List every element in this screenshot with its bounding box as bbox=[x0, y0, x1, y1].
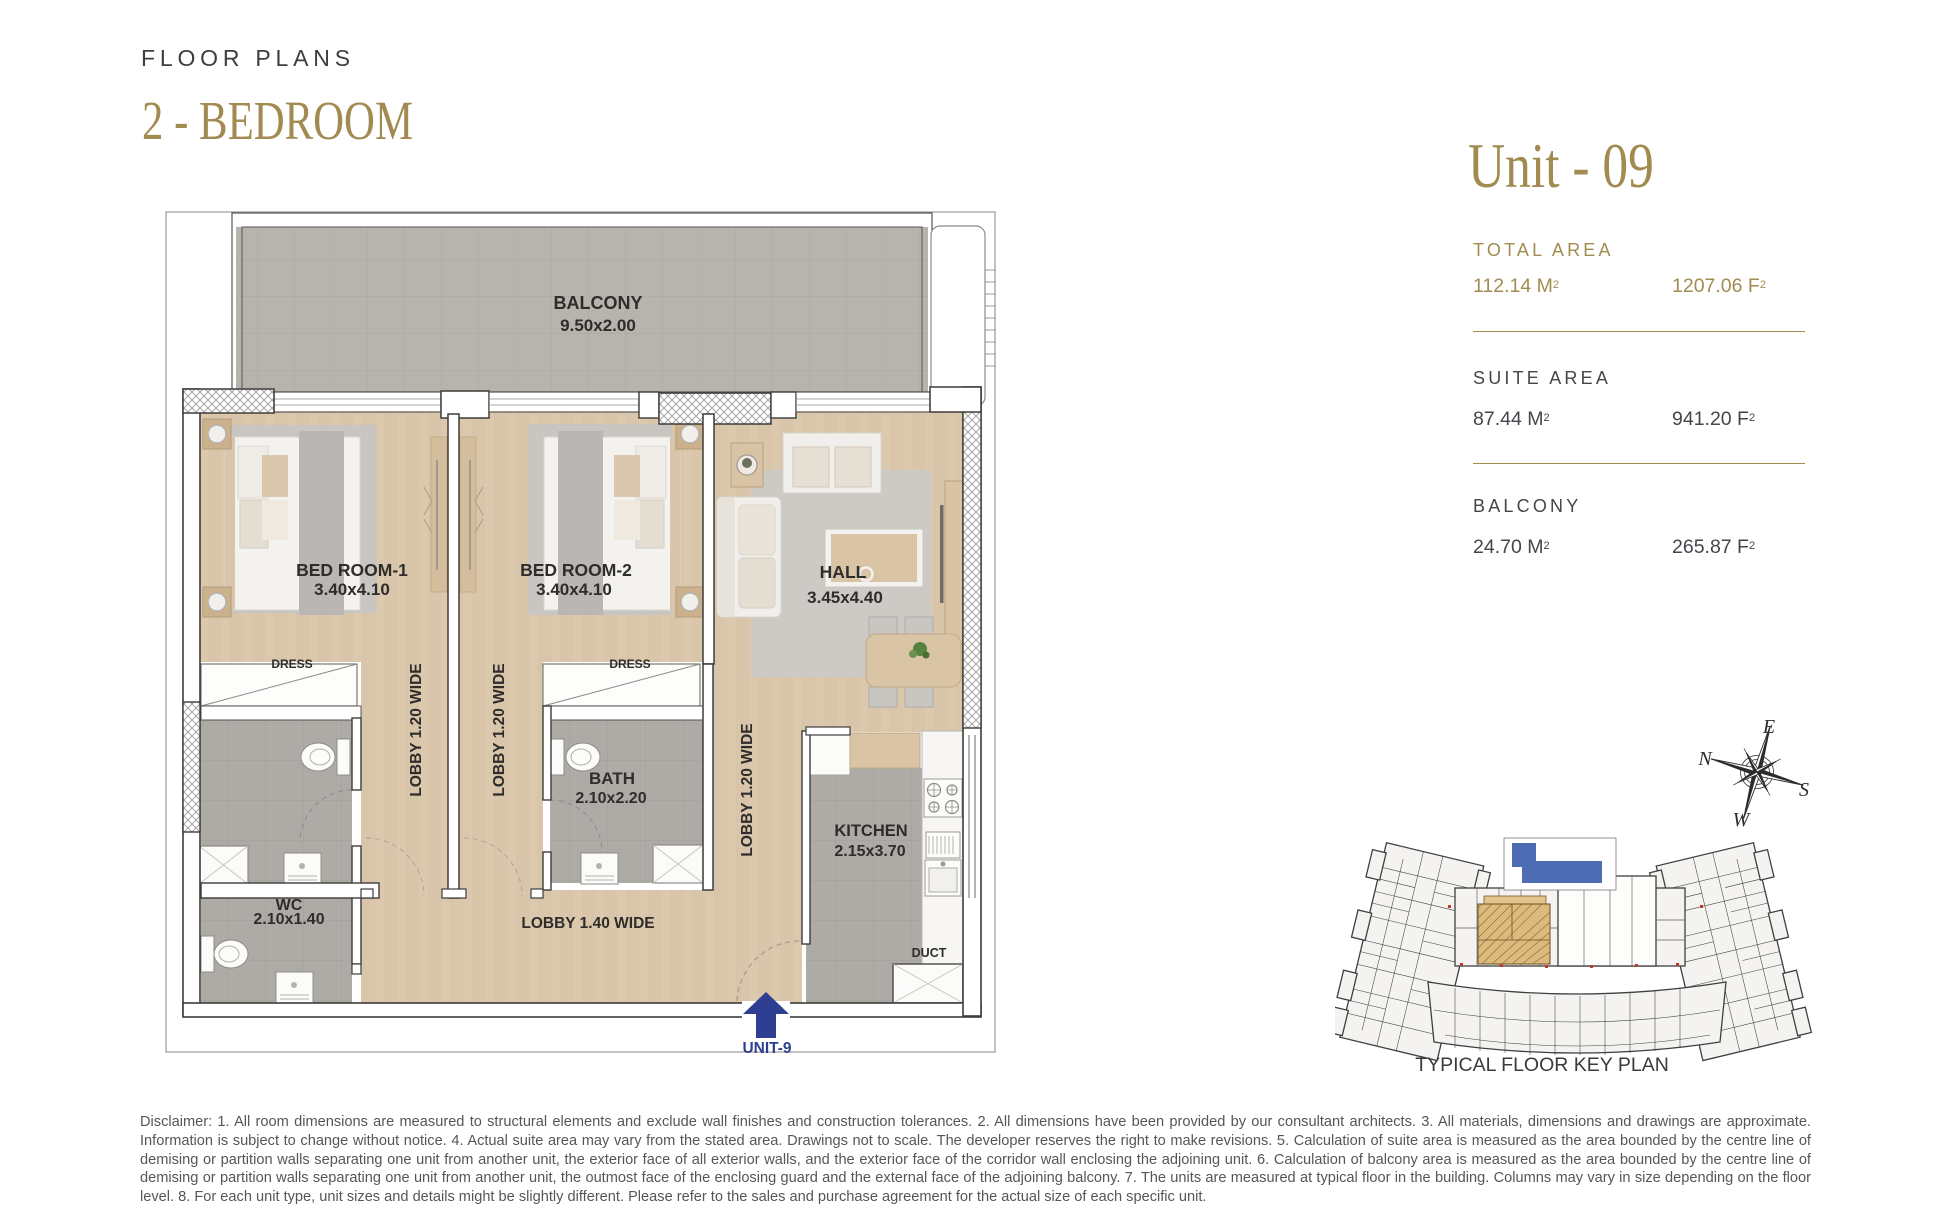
svg-text:N: N bbox=[1697, 748, 1713, 770]
svg-text:BED ROOM-1: BED ROOM-1 bbox=[296, 560, 408, 580]
svg-text:2.10x2.20: 2.10x2.20 bbox=[575, 790, 646, 807]
svg-text:HALL: HALL bbox=[820, 562, 867, 582]
svg-text:UNIT-9: UNIT-9 bbox=[742, 1040, 791, 1057]
svg-text:TYPICAL FLOOR KEY PLAN: TYPICAL FLOOR KEY PLAN bbox=[1415, 1054, 1669, 1076]
svg-text:KITCHEN: KITCHEN bbox=[834, 822, 907, 840]
svg-text:E: E bbox=[1762, 716, 1775, 738]
svg-text:LOBBY 1.40 WIDE: LOBBY 1.40 WIDE bbox=[521, 915, 654, 932]
svg-text:DRESS: DRESS bbox=[271, 657, 312, 671]
svg-text:BALCONY: BALCONY bbox=[554, 293, 643, 313]
svg-text:2.10x1.40: 2.10x1.40 bbox=[253, 911, 324, 928]
svg-text:BED ROOM-2: BED ROOM-2 bbox=[520, 560, 632, 580]
svg-text:LOBBY 1.20 WIDE: LOBBY 1.20 WIDE bbox=[491, 663, 508, 796]
svg-text:3.45x4.40: 3.45x4.40 bbox=[807, 588, 883, 607]
svg-text:LOBBY 1.20 WIDE: LOBBY 1.20 WIDE bbox=[739, 723, 756, 856]
svg-text:3.40x4.10: 3.40x4.10 bbox=[314, 580, 390, 599]
svg-text:9.50x2.00: 9.50x2.00 bbox=[560, 316, 636, 335]
svg-text:S: S bbox=[1799, 779, 1809, 801]
svg-text:LOBBY 1.20 WIDE: LOBBY 1.20 WIDE bbox=[408, 663, 425, 796]
svg-text:2.15x3.70: 2.15x3.70 bbox=[834, 843, 905, 860]
svg-text:BATH: BATH bbox=[589, 769, 635, 788]
svg-text:DRESS: DRESS bbox=[609, 657, 650, 671]
svg-text:DUCT: DUCT bbox=[912, 946, 947, 960]
svg-text:3.40x4.10: 3.40x4.10 bbox=[536, 580, 612, 599]
